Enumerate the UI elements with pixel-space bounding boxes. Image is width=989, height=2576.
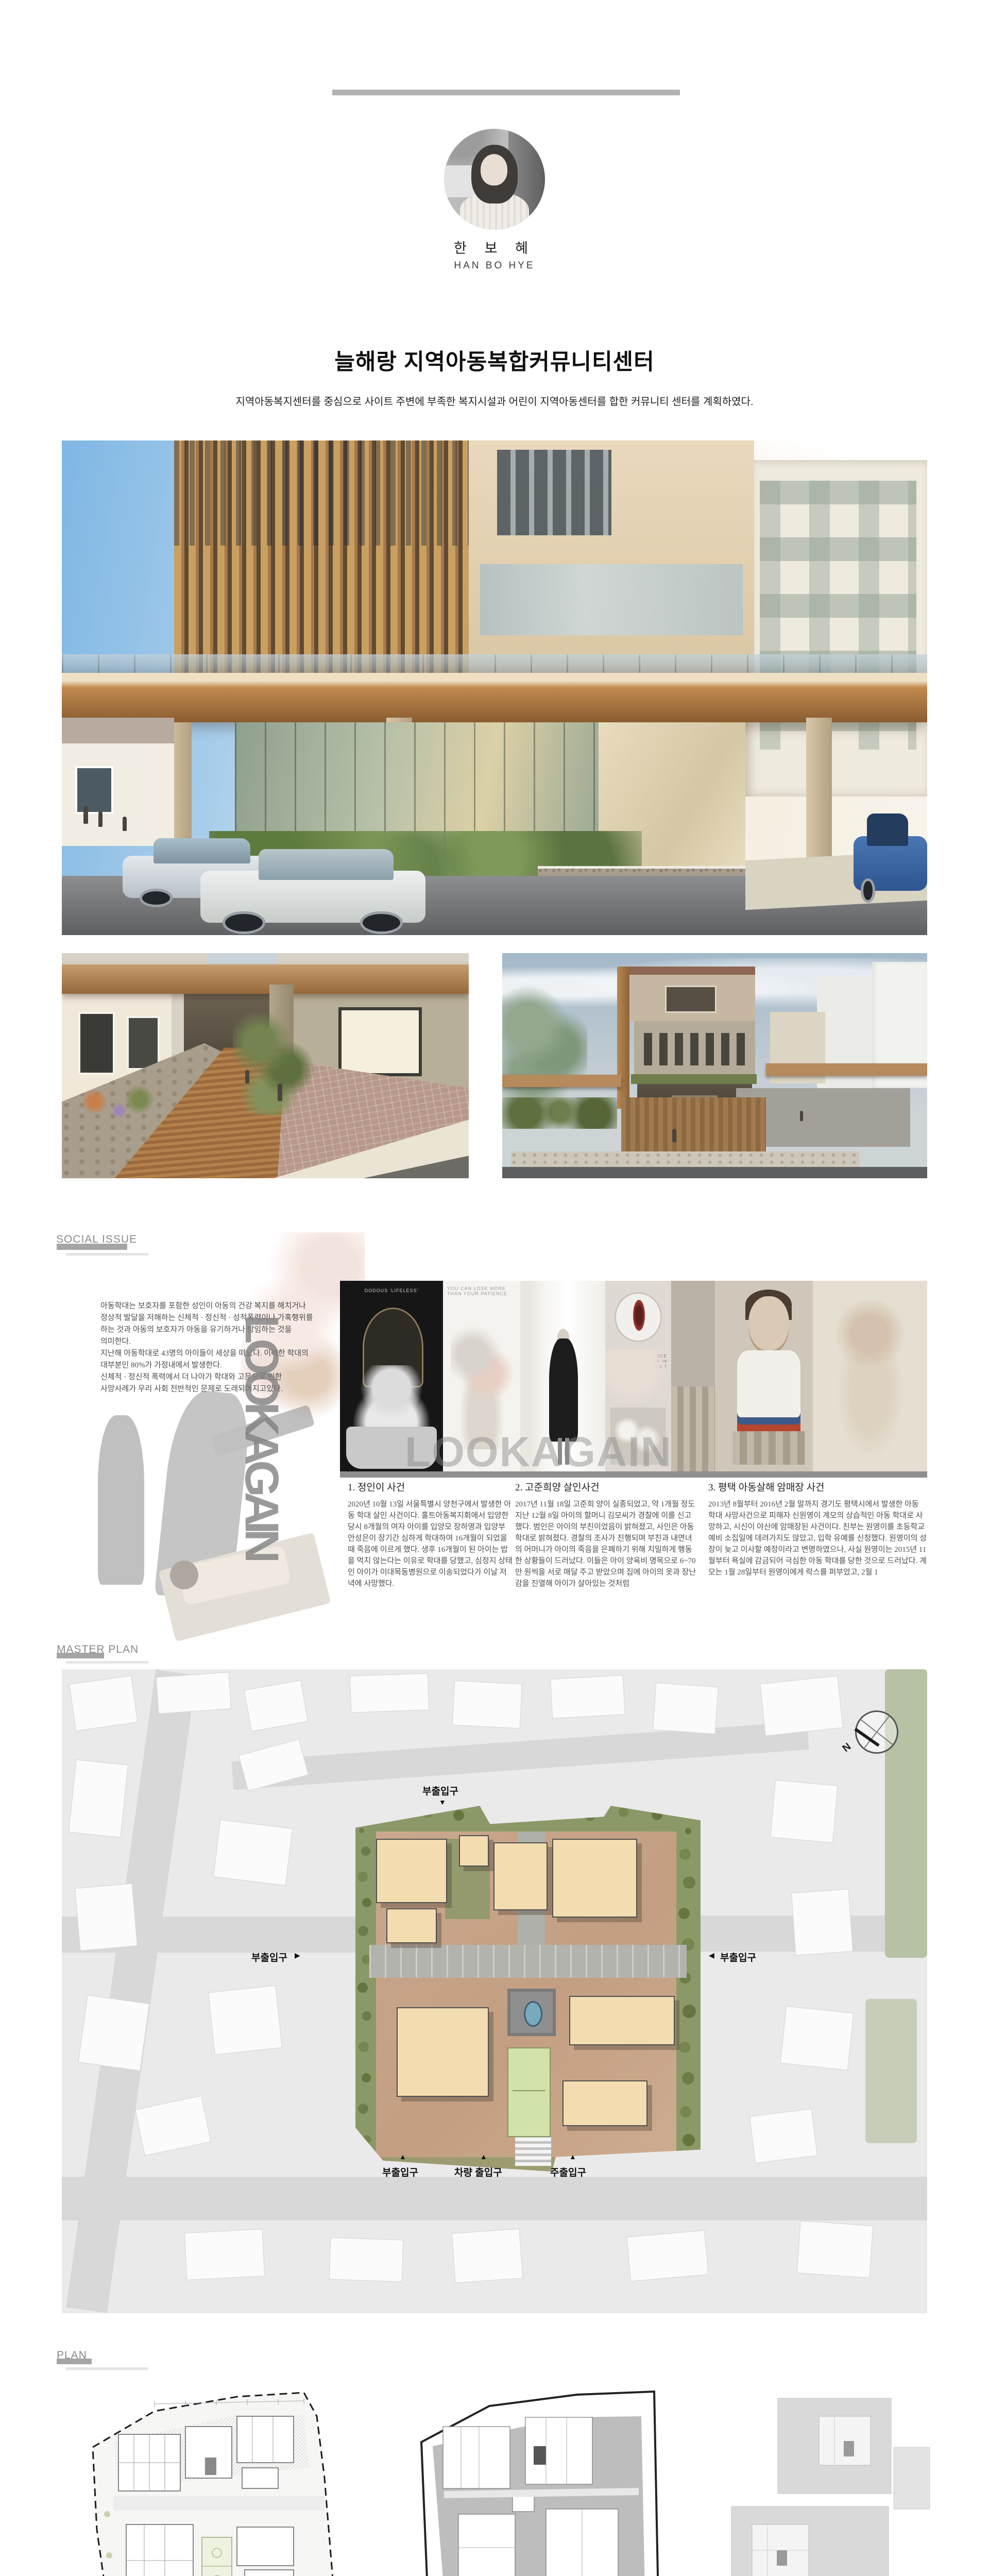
crosswalk	[515, 2137, 551, 2166]
section-label-plan: PLAN	[57, 2349, 87, 2362]
section-label-social-issue: SOCIAL ISSUE	[56, 1233, 137, 1246]
art-blocks-backdrop	[671, 1281, 715, 1472]
elevation-hedges	[502, 1097, 617, 1129]
white-hatchback	[200, 871, 425, 923]
central-courtyard	[507, 1989, 556, 2036]
entrance-label-top: 부출입구	[422, 1784, 458, 1798]
person-silhouette	[245, 1070, 249, 1083]
hero-render-image	[62, 440, 927, 935]
hero-cantilever-slab	[62, 673, 927, 722]
entrance-arrow-right-icon: ▶	[295, 1951, 300, 1960]
compass-north-letter: N	[840, 1741, 854, 1755]
courtyard-render-image	[62, 953, 469, 1178]
site-trees	[359, 1828, 364, 1833]
courtyard-lit-window	[338, 1007, 422, 1076]
case-2-title: 2. 고준희양 살인사건	[515, 1480, 698, 1494]
case-1-title: 1. 정인이 사건	[348, 1480, 513, 1494]
person-silhouette	[83, 806, 88, 824]
hero-neighbor-houses	[62, 718, 174, 846]
portfolio-board: 한 보 혜 HAN BO HYE 늘해랑 지역아동복합커뮤니티센터 지역아동복지…	[0, 0, 989, 2576]
case-column-2: 2. 고준희양 살인사건 2017년 11월 18일 고준희 양이 실종되었고,…	[515, 1480, 698, 1589]
case-1-body: 2020년 10월 13일 서울특별시 양천구에서 발생한 아동 학대 살인 사…	[348, 1499, 513, 1589]
project-title: 늘해랑 지역아동복합커뮤니티센터	[0, 344, 989, 376]
site-trees	[397, 1811, 402, 1817]
courtyard-bridge	[62, 964, 469, 994]
site-building	[386, 1908, 437, 1943]
site-building	[493, 1842, 548, 1910]
case-column-1: 1. 정인이 사건 2020년 10월 13일 서울특별시 양천구에서 발생한 …	[348, 1480, 513, 1589]
site-building	[569, 1996, 675, 2045]
site-building	[552, 1839, 637, 1918]
art-pale-drawing	[813, 1281, 927, 1472]
case-3-body: 2013년 8월부터 2016년 2월 말까지 경기도 평택시에서 발생한 아동…	[708, 1499, 927, 1578]
site-building	[397, 2007, 488, 2097]
hero-glass-railing	[62, 654, 927, 674]
courtyard-flowers	[78, 1083, 160, 1128]
person-silhouette	[800, 1111, 803, 1121]
entrance-label-bottom-sub: 부출입구	[382, 2165, 418, 2179]
blue-suv	[854, 836, 927, 891]
photo-person-face	[481, 154, 508, 185]
north-arrow-icon: N	[855, 1710, 898, 1754]
case-2-body: 2017년 11월 18일 고준희 양이 실종되었고, 약 1개월 정도 지난 …	[515, 1499, 698, 1589]
site-building	[459, 1835, 489, 1867]
floor-plan-3f	[716, 2385, 945, 2576]
profile-name: 한 보 혜	[0, 237, 989, 257]
entrance-arrow-up-icon: ▲	[399, 2153, 406, 2161]
hero-background-building	[745, 460, 927, 796]
photo-boy-with-blocks	[715, 1281, 813, 1472]
hero-right-wing	[469, 440, 754, 678]
profile-name-en: HAN BO HYE	[0, 260, 989, 272]
elevation-bridge-left	[502, 1075, 621, 1087]
person-silhouette	[123, 817, 127, 831]
entrance-arrow-down-icon: ▼	[439, 1798, 446, 1806]
elevation-wood-mast	[617, 967, 629, 1108]
basketball-court	[507, 2047, 551, 2137]
profile-photo	[444, 129, 545, 230]
case-3-title: 3. 평택 아동살해 암매장 사건	[708, 1480, 927, 1494]
entrance-label-left: 부출입구	[251, 1950, 287, 1964]
park-green	[885, 1669, 927, 1958]
top-divider	[332, 90, 680, 95]
elevation-render-image	[502, 953, 927, 1178]
entrance-arrow-up-icon: ▲	[569, 2153, 576, 2161]
person-silhouette	[98, 811, 103, 827]
child-abuse-illustration-gray	[77, 1391, 335, 1633]
entrance-label-right: 부출입구	[720, 1950, 756, 1964]
look-again-watermark-horizontal: LOOKAGAIN	[405, 1428, 672, 1477]
entrance-arrow-up-icon: ▲	[480, 2153, 487, 2161]
sketch-caption: YOU CAN LOSE MORE THAN YOUR PATIENCE	[447, 1286, 507, 1296]
site-building	[562, 2080, 647, 2126]
person-silhouette	[278, 1083, 282, 1101]
person-silhouette	[672, 1129, 676, 1142]
entrance-label-vehicle: 차량 출입구	[454, 2165, 502, 2179]
floor-plan-1f	[82, 2385, 355, 2576]
entrance-label-main: 주출입구	[550, 2165, 586, 2179]
site-plan-area	[355, 1806, 701, 2172]
hero-column	[806, 718, 832, 866]
master-plan-map: 부출입구 ▼ 부출입구 ▶ ◀ 부출입구 ▲ 부출입구 ▲ 차량 출입구 ▲ 주…	[62, 1669, 927, 2313]
poster-caption: DODOUS 'LIFELESS'	[340, 1288, 443, 1293]
floor-plans-row: 1F 2F 3F	[62, 2380, 927, 2576]
site-walkway	[369, 1945, 687, 1978]
site-building	[376, 1839, 447, 1903]
fountain	[524, 2001, 542, 2027]
case-column-3: 3. 평택 아동살해 암매장 사건 2013년 8월부터 2016년 2월 말까…	[708, 1480, 927, 1578]
project-subtitle: 지역아동복지센터를 중심으로 사이트 주변에 부족한 복지시설과 어린이 지역아…	[0, 393, 989, 408]
floor-plan-2f	[412, 2385, 670, 2576]
section-label-master-plan: MASTER PLAN	[57, 1643, 139, 1656]
entrance-arrow-left-icon: ◀	[709, 1951, 714, 1960]
site-trees	[685, 1828, 691, 1834]
elevation-bridge-right	[766, 1063, 928, 1076]
look-again-watermark-vertical: LOOKAGAIN	[233, 1315, 291, 1629]
